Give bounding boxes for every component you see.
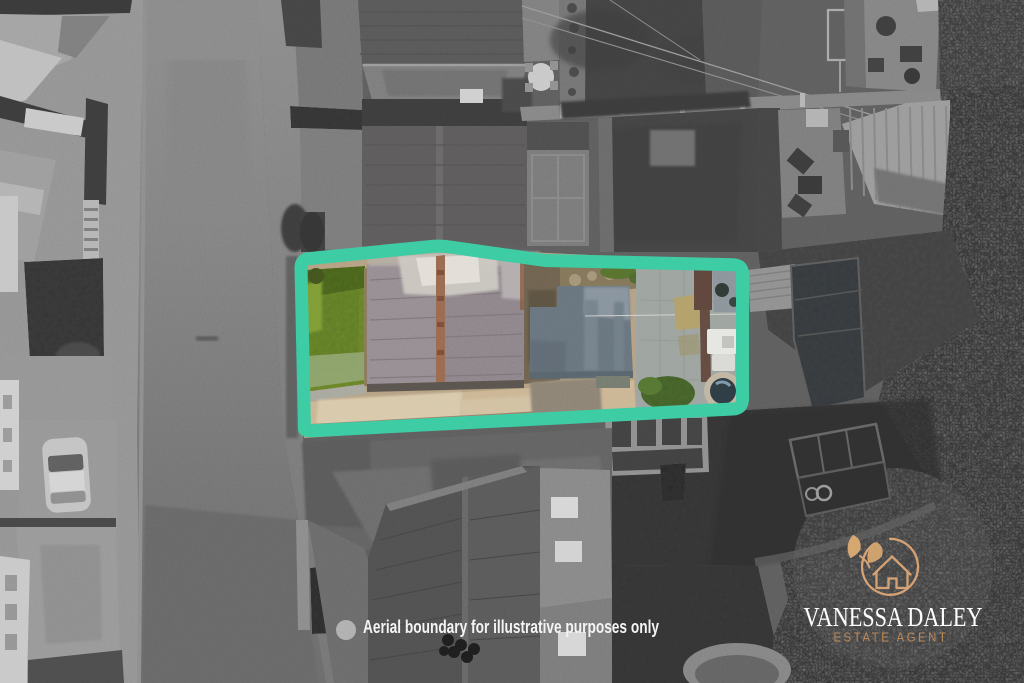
svg-text:VANESSA DALEY: VANESSA DALEY [804,602,983,632]
svg-text:ESTATE AGENT: ESTATE AGENT [834,631,949,645]
svg-text:Aerial boundary for illustrati: Aerial boundary for illustrative purpose… [363,617,659,637]
